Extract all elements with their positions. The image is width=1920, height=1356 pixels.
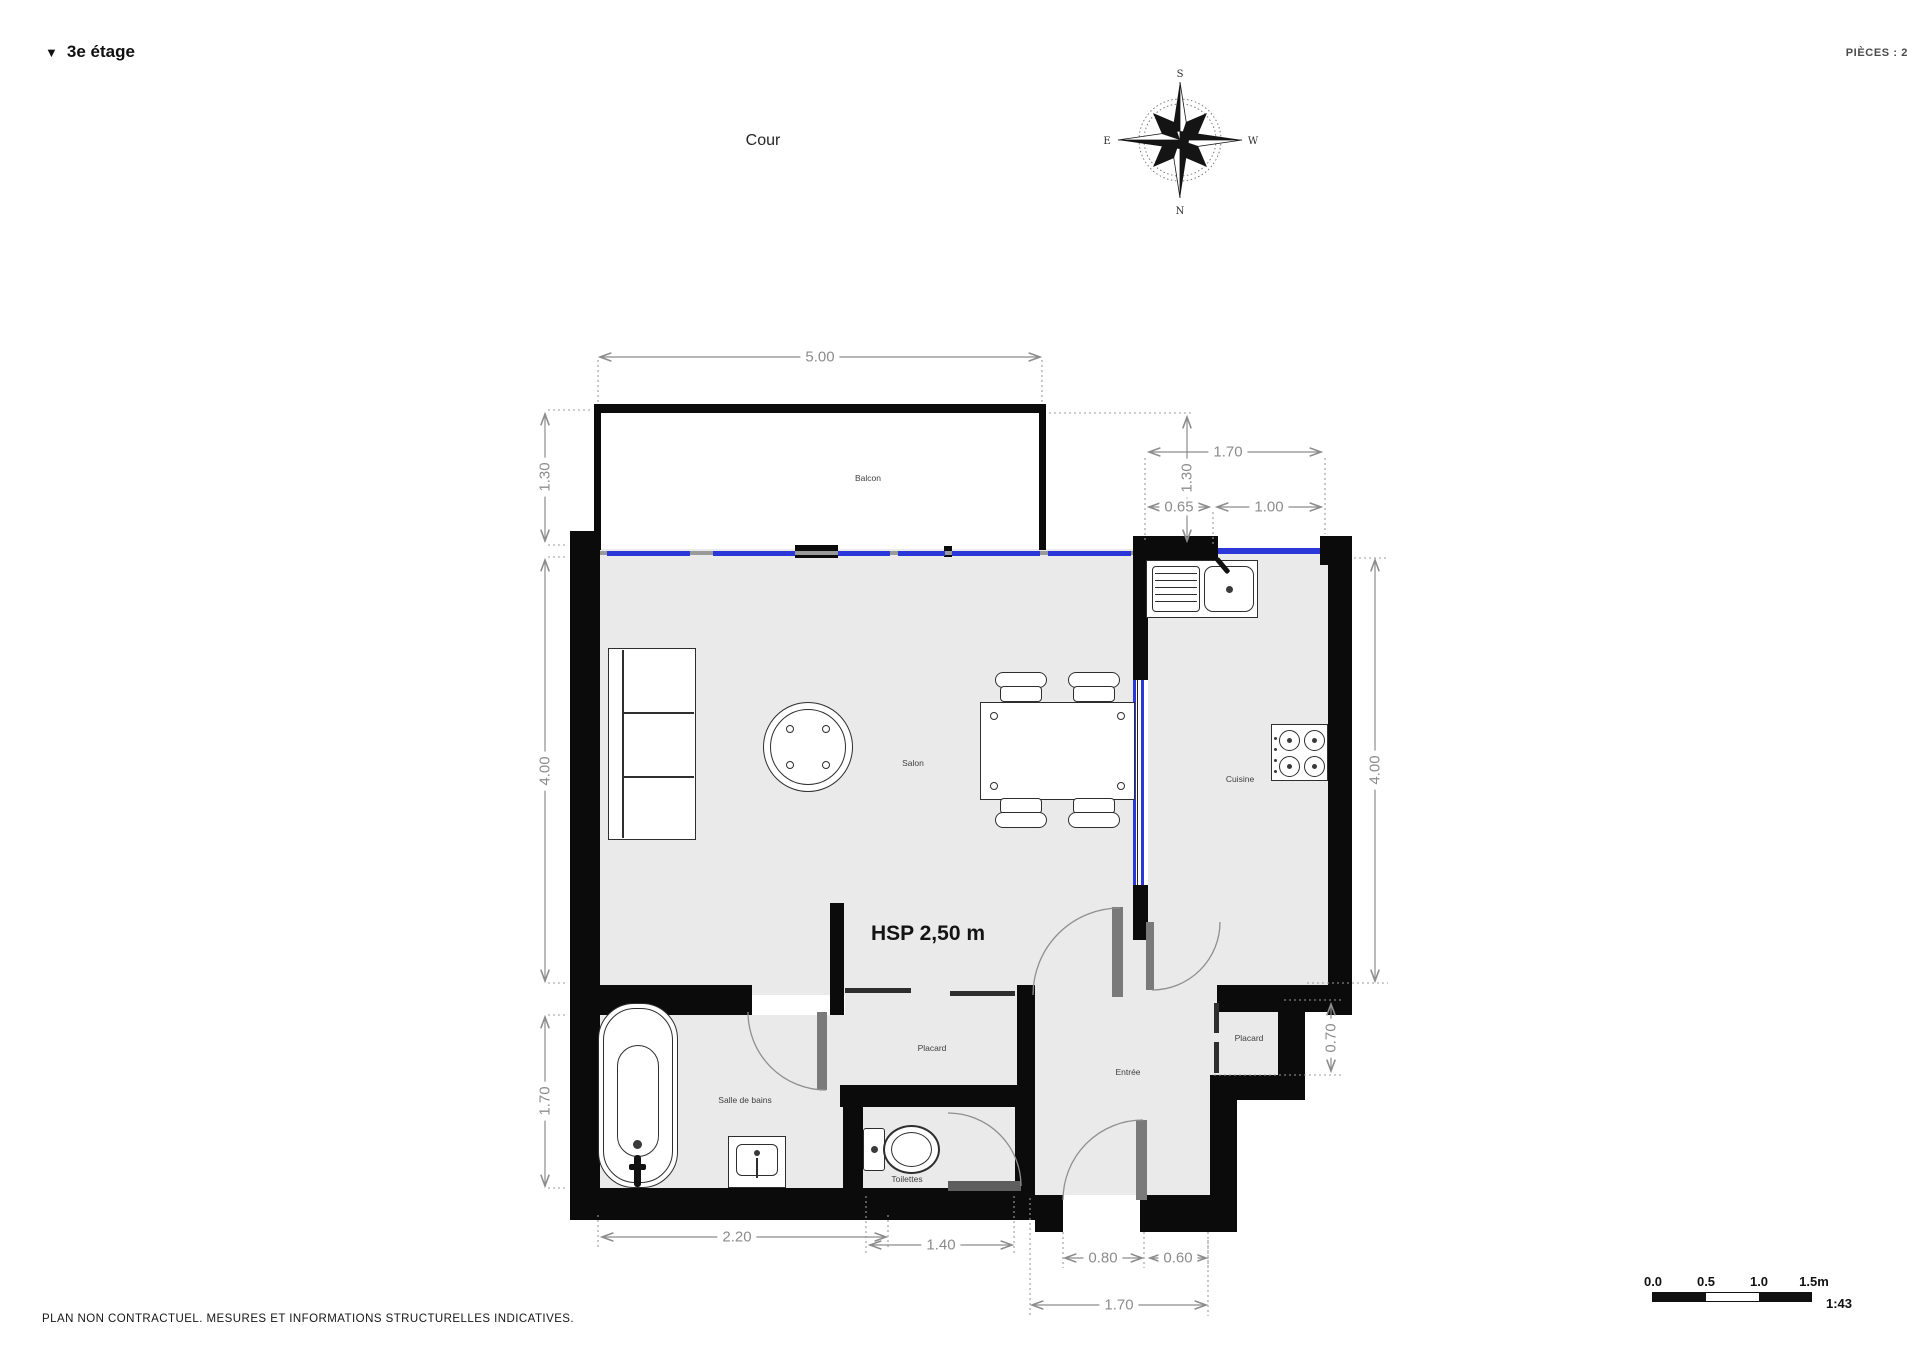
kitchen-window — [1218, 548, 1320, 554]
dim-top-width: 5.00 — [800, 349, 839, 366]
sofa-cushion-line — [623, 776, 694, 778]
bath-toilet-divider — [843, 1085, 863, 1193]
scale-ratio: 1:43 — [1826, 1296, 1852, 1311]
drainboard-ridge — [1155, 580, 1197, 581]
compass-west-label: W — [1248, 136, 1259, 147]
drainboard-ridge — [1155, 601, 1197, 602]
toilet-button — [871, 1146, 878, 1153]
closet-right-bottom-wall — [1212, 1075, 1305, 1100]
courtyard-label: Cour — [746, 132, 781, 150]
disclaimer-text: PLAN NON CONTRACTUEL. MESURES ET INFORMA… — [42, 1313, 574, 1325]
left-exterior-wall — [570, 531, 600, 1220]
dim-right-kitchen: 4.00 — [1367, 750, 1384, 789]
collapse-triangle-icon: ▼ — [45, 45, 58, 60]
chair-back — [1068, 812, 1120, 828]
closet-left-sliding-door — [845, 988, 911, 993]
washbasin-tap — [754, 1150, 760, 1156]
closet-right-sliding-door — [1214, 1003, 1219, 1033]
window-glass — [607, 551, 690, 556]
chair-seat — [1000, 686, 1042, 702]
stove-knob — [1274, 737, 1277, 740]
chair-seat — [1073, 686, 1115, 702]
chair-back — [995, 812, 1047, 828]
compass-cardinal-points — [1118, 82, 1242, 198]
ceiling-height-annotation: HSP 2,50 m — [871, 922, 985, 946]
closet-right-sliding-door — [1214, 1042, 1219, 1073]
compass-north-label: N — [1176, 206, 1185, 217]
dim-closet: 0.70 — [1323, 1018, 1340, 1057]
sofa-backrest-line — [622, 650, 624, 838]
burner-center — [1287, 764, 1292, 769]
washbasin-stem — [756, 1158, 758, 1178]
scale-tick-15: 1.5m — [1799, 1274, 1829, 1289]
window-glass — [1048, 551, 1131, 556]
toilet-door-leaf — [948, 1181, 1021, 1191]
floor-selector[interactable]: ▼3e étage — [45, 42, 135, 62]
drainboard-ridge — [1155, 573, 1197, 574]
bathtub-faucet-bar — [629, 1164, 646, 1170]
dim-left-balcony: 1.30 — [537, 457, 554, 496]
table-corner-dot — [990, 712, 998, 720]
door-stub-wall — [830, 903, 844, 1015]
dim-left-salon: 4.00 — [537, 751, 554, 790]
toilet-bowl-inner — [891, 1132, 932, 1167]
sink-drain — [1226, 586, 1233, 593]
living-entry-door-leaf — [1112, 907, 1123, 997]
balcony-left-wall — [594, 404, 601, 550]
dim-right-top: 1.70 — [1208, 444, 1247, 461]
scale-tick-0: 0.0 — [1644, 1274, 1662, 1289]
toilet-label: Toilettes — [891, 1174, 922, 1184]
living-label: Salon — [902, 758, 924, 768]
stove-knob — [1274, 770, 1277, 773]
bathroom-label: Salle de bains — [718, 1095, 771, 1105]
bathtub-faucet — [634, 1155, 641, 1187]
compass-diagonal-points — [1153, 113, 1207, 167]
closet-right-side-wall — [1278, 1000, 1305, 1077]
floor-title: 3e étage — [67, 42, 135, 61]
window-glass — [838, 551, 890, 556]
entry-label: Entrée — [1115, 1067, 1140, 1077]
stove-knob — [1274, 759, 1277, 762]
table-corner-dot — [1117, 782, 1125, 790]
closet-right-label: Placard — [1235, 1033, 1264, 1043]
bottom-wall-left — [570, 1188, 1035, 1220]
dim-right-balcony: 1.30 — [1179, 458, 1196, 497]
balcony-top-wall — [594, 404, 1046, 413]
dim-bottom-toilet: 1.40 — [921, 1237, 960, 1254]
burner-center — [1287, 738, 1292, 743]
balcony-right-wall — [1039, 404, 1046, 550]
table-screw — [786, 761, 794, 769]
rooms-count-badge: PIÈCES : 2 — [1846, 47, 1908, 59]
window-glass — [713, 551, 795, 556]
closet-left-sliding-door — [950, 991, 1015, 996]
bathtub-drain — [633, 1140, 642, 1149]
table-corner-dot — [1117, 712, 1125, 720]
bathroom-door-leaf — [817, 1012, 827, 1090]
compass-rose: S N W E — [1103, 69, 1259, 217]
scale-tick-10: 1.0 — [1750, 1274, 1768, 1289]
toilet-top-wall — [840, 1085, 1035, 1107]
burner-center — [1312, 738, 1317, 743]
closet-left-label: Placard — [918, 1043, 947, 1053]
closet-left-floor — [845, 995, 1017, 1085]
balcony-label: Balcon — [855, 473, 881, 483]
front-door-leaf — [1136, 1120, 1147, 1200]
dim-offset: 0.65 — [1159, 499, 1198, 516]
floor-plan-page: ▼3e étage PIÈCES : 2 Cour — [0, 0, 1920, 1356]
window-glass — [898, 551, 945, 556]
dining-table — [980, 702, 1135, 800]
toilet-right-wall — [1015, 1090, 1035, 1193]
entry-bottom-wall-left — [1035, 1195, 1063, 1232]
dim-bottom-wall: 0.60 — [1158, 1250, 1197, 1267]
dim-bottom-bath: 2.20 — [717, 1229, 756, 1246]
entry-bottom-wall-right — [1140, 1195, 1210, 1232]
closet-column-wall — [1017, 985, 1035, 1093]
table-screw — [822, 761, 830, 769]
dim-bottom-door: 0.80 — [1083, 1250, 1122, 1267]
kitchen-entry-door-leaf — [1146, 922, 1154, 990]
round-table-inner — [770, 709, 846, 785]
compass-east-label: E — [1103, 136, 1110, 147]
drainboard-ridge — [1155, 587, 1197, 588]
scale-bar-segment — [1759, 1293, 1811, 1301]
window-glass — [952, 551, 1040, 556]
kitchen-label: Cuisine — [1226, 774, 1254, 784]
burner-center — [1312, 764, 1317, 769]
scale-tick-05: 0.5 — [1697, 1274, 1715, 1289]
dim-bottom-entry: 1.70 — [1099, 1297, 1138, 1314]
dim-left-bath: 1.70 — [537, 1081, 554, 1120]
right-exterior-wall — [1328, 536, 1352, 1015]
drainboard-ridge — [1155, 594, 1197, 595]
sofa-cushion-line — [623, 712, 694, 714]
compass-south-label: S — [1177, 69, 1184, 80]
compass-labels: S N W E — [1103, 69, 1259, 217]
stove-knob — [1274, 748, 1277, 751]
table-corner-dot — [990, 782, 998, 790]
scale-bar — [1652, 1292, 1812, 1302]
table-screw — [786, 725, 794, 733]
table-screw — [822, 725, 830, 733]
scale-bar-segment — [1653, 1293, 1706, 1301]
dim-window: 1.00 — [1249, 499, 1288, 516]
